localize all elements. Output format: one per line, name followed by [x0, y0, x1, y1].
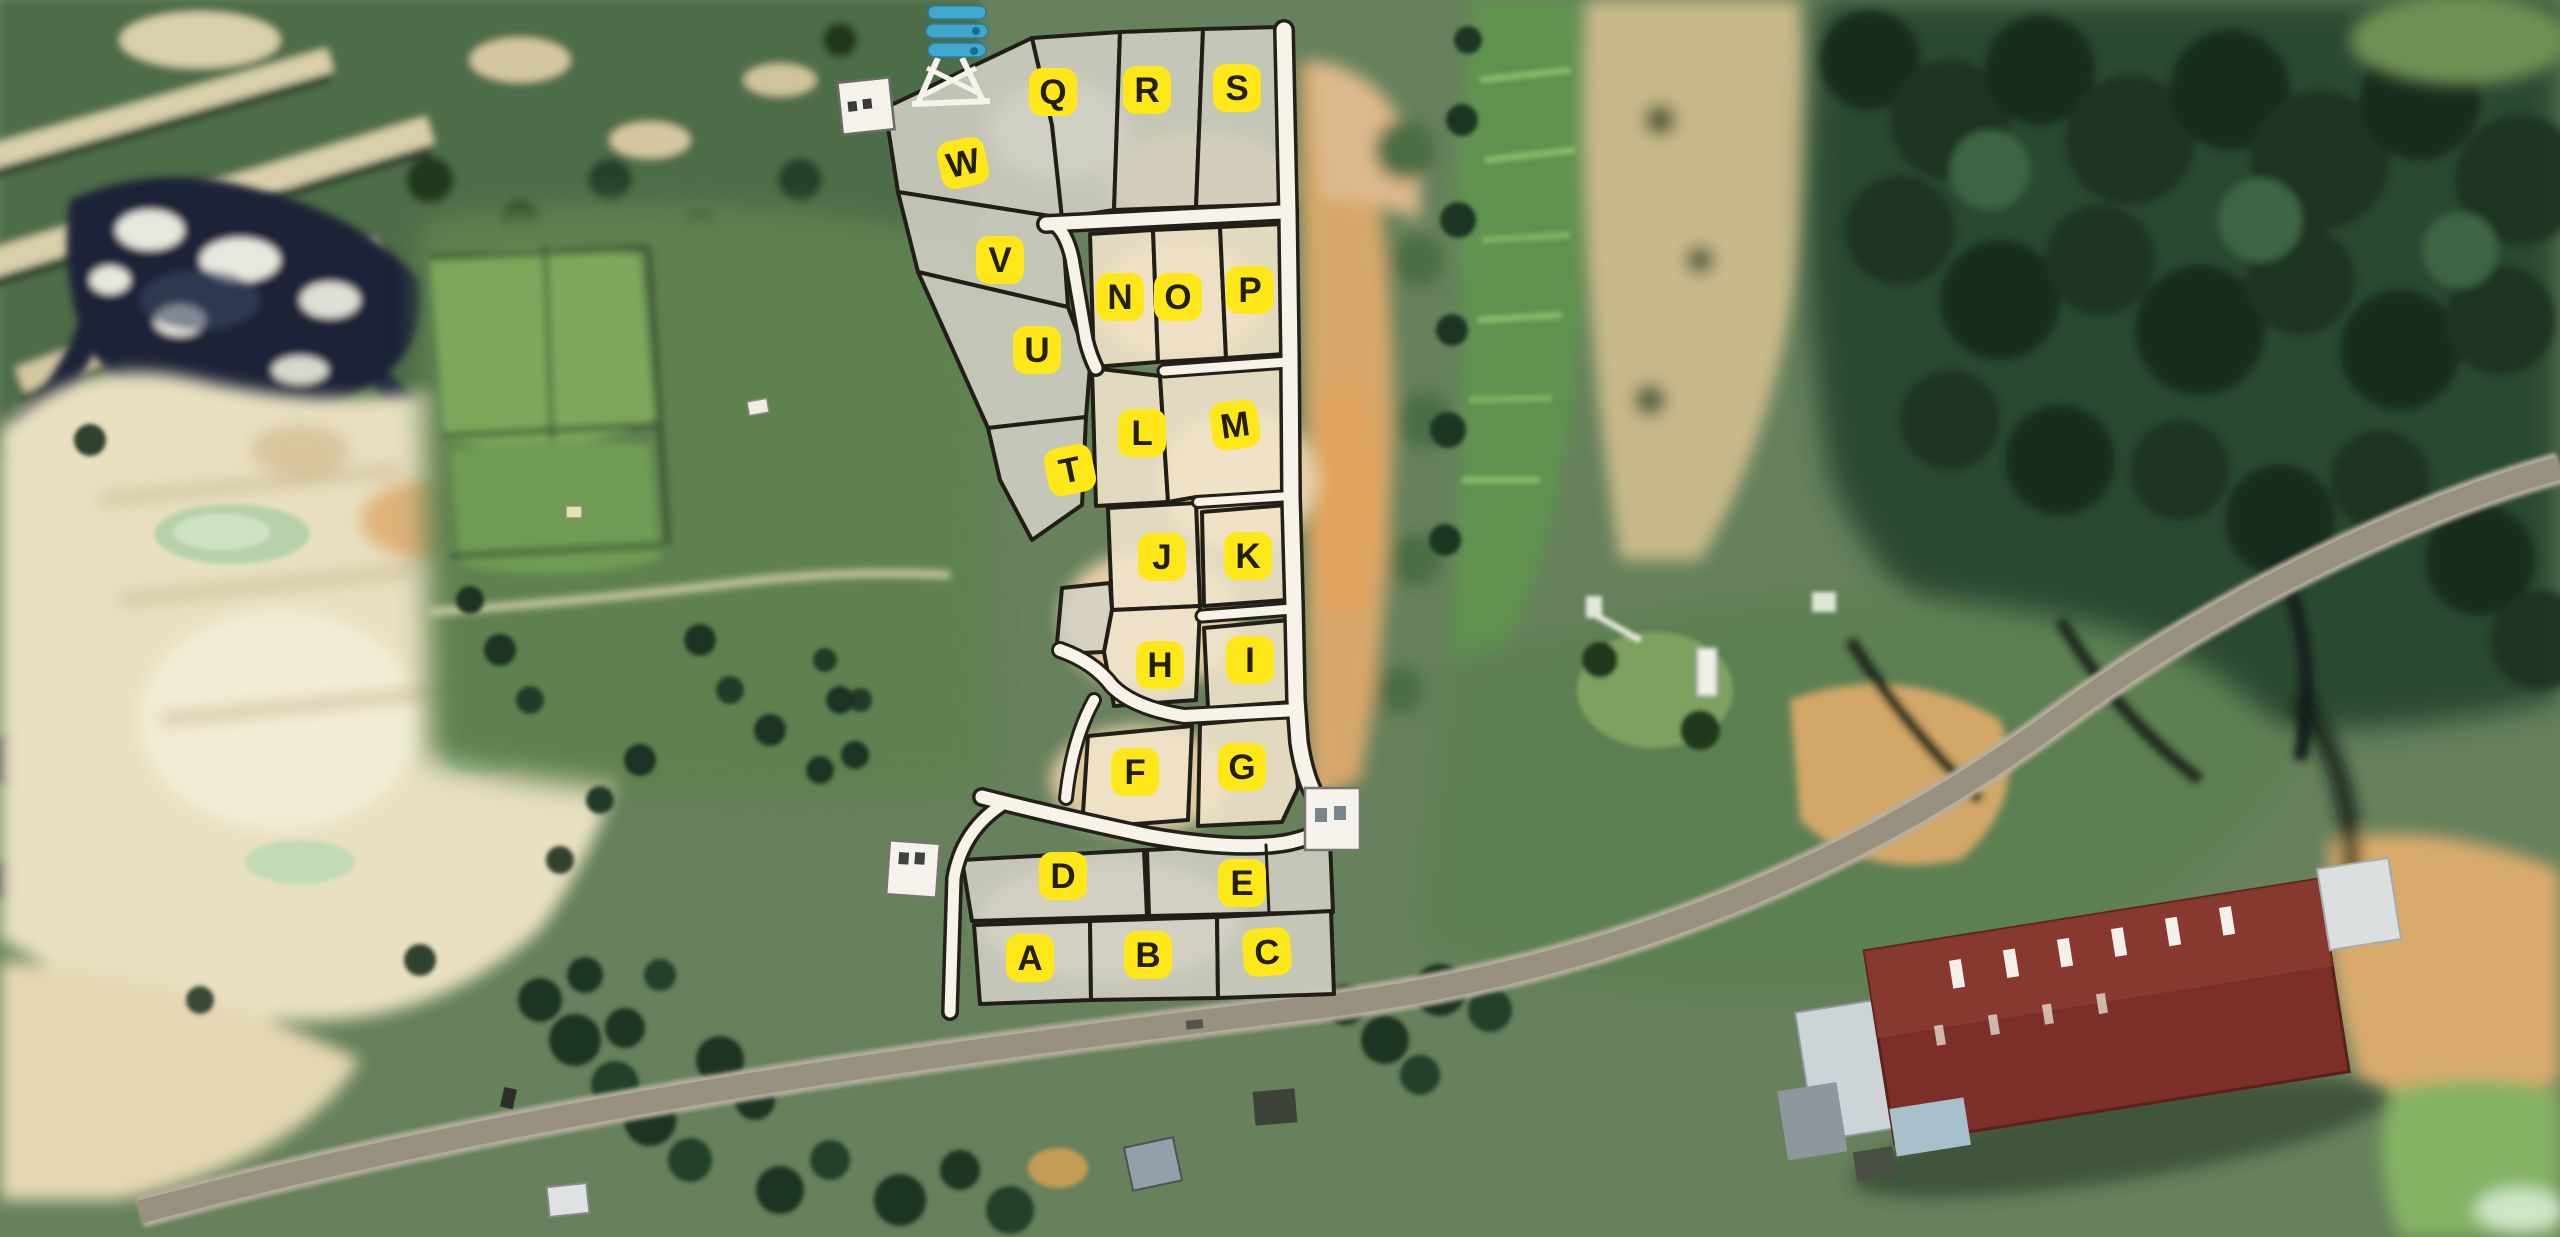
plot-marker-M[interactable]: M	[1208, 398, 1262, 452]
plot-marker-V[interactable]: V	[976, 236, 1024, 284]
plot-marker-N[interactable]: N	[1096, 273, 1144, 321]
plot-marker-letter: B	[1135, 936, 1160, 975]
plot-marker-letter: A	[1017, 939, 1042, 978]
plot-marker-K[interactable]: K	[1224, 532, 1272, 580]
plot-marker-U[interactable]: U	[1013, 326, 1061, 374]
plot-marker-letter: N	[1107, 278, 1132, 317]
plot-marker-F[interactable]: F	[1111, 748, 1159, 796]
plot-marker-A[interactable]: A	[1006, 934, 1054, 982]
plot-marker-letter: I	[1245, 641, 1255, 680]
plot-marker-R[interactable]: R	[1123, 66, 1171, 114]
plot-marker-Q[interactable]: Q	[1029, 68, 1077, 116]
plot-marker-letter: H	[1147, 646, 1172, 685]
plot-marker-letter: V	[988, 241, 1012, 280]
map-canvas: QRSWVUNOPLMTJKHIFGDEABC	[0, 0, 2560, 1237]
farm-fields-center	[420, 204, 990, 814]
plot-marker-letter: S	[1225, 69, 1248, 108]
plot-marker-L[interactable]: L	[1118, 409, 1166, 457]
plot-marker-letter: E	[1230, 864, 1253, 903]
utility-building-north	[837, 77, 894, 134]
plot-marker-H[interactable]: H	[1136, 641, 1184, 689]
satellite-plot-map: QRSWVUNOPLMTJKHIFGDEABC	[0, 0, 2560, 1237]
plot-marker-S[interactable]: S	[1213, 64, 1261, 112]
plot-marker-letter: J	[1152, 538, 1171, 577]
plot-marker-G[interactable]: G	[1218, 743, 1266, 791]
plot-marker-B[interactable]: B	[1124, 931, 1172, 979]
plot-marker-letter: F	[1124, 753, 1145, 792]
plot-marker-I[interactable]: I	[1226, 636, 1274, 684]
plot-marker-letter: O	[1164, 278, 1191, 317]
plot-marker-letter: P	[1238, 271, 1261, 310]
plot-marker-letter: M	[1218, 404, 1252, 447]
plot-marker-letter: K	[1235, 537, 1260, 576]
plot-marker-letter: C	[1253, 932, 1281, 973]
plot-marker-C[interactable]: C	[1241, 926, 1292, 977]
plot-marker-letter: D	[1050, 857, 1075, 896]
plot-marker-letter: L	[1131, 414, 1152, 453]
plot-marker-O[interactable]: O	[1154, 273, 1202, 321]
parcel-S[interactable]	[1196, 27, 1286, 207]
plot-marker-letter: R	[1134, 71, 1159, 110]
plot-marker-letter: U	[1024, 331, 1049, 370]
plot-marker-P[interactable]: P	[1226, 266, 1274, 314]
plot-marker-letter: G	[1228, 748, 1255, 787]
gate-house-west	[886, 840, 940, 897]
parcel-R[interactable]	[1114, 29, 1203, 210]
plot-marker-E[interactable]: E	[1218, 859, 1266, 907]
gate-house-east	[1305, 788, 1360, 850]
plot-marker-D[interactable]: D	[1039, 852, 1087, 900]
plot-marker-J[interactable]: J	[1138, 533, 1186, 581]
plot-marker-letter: Q	[1039, 73, 1066, 112]
